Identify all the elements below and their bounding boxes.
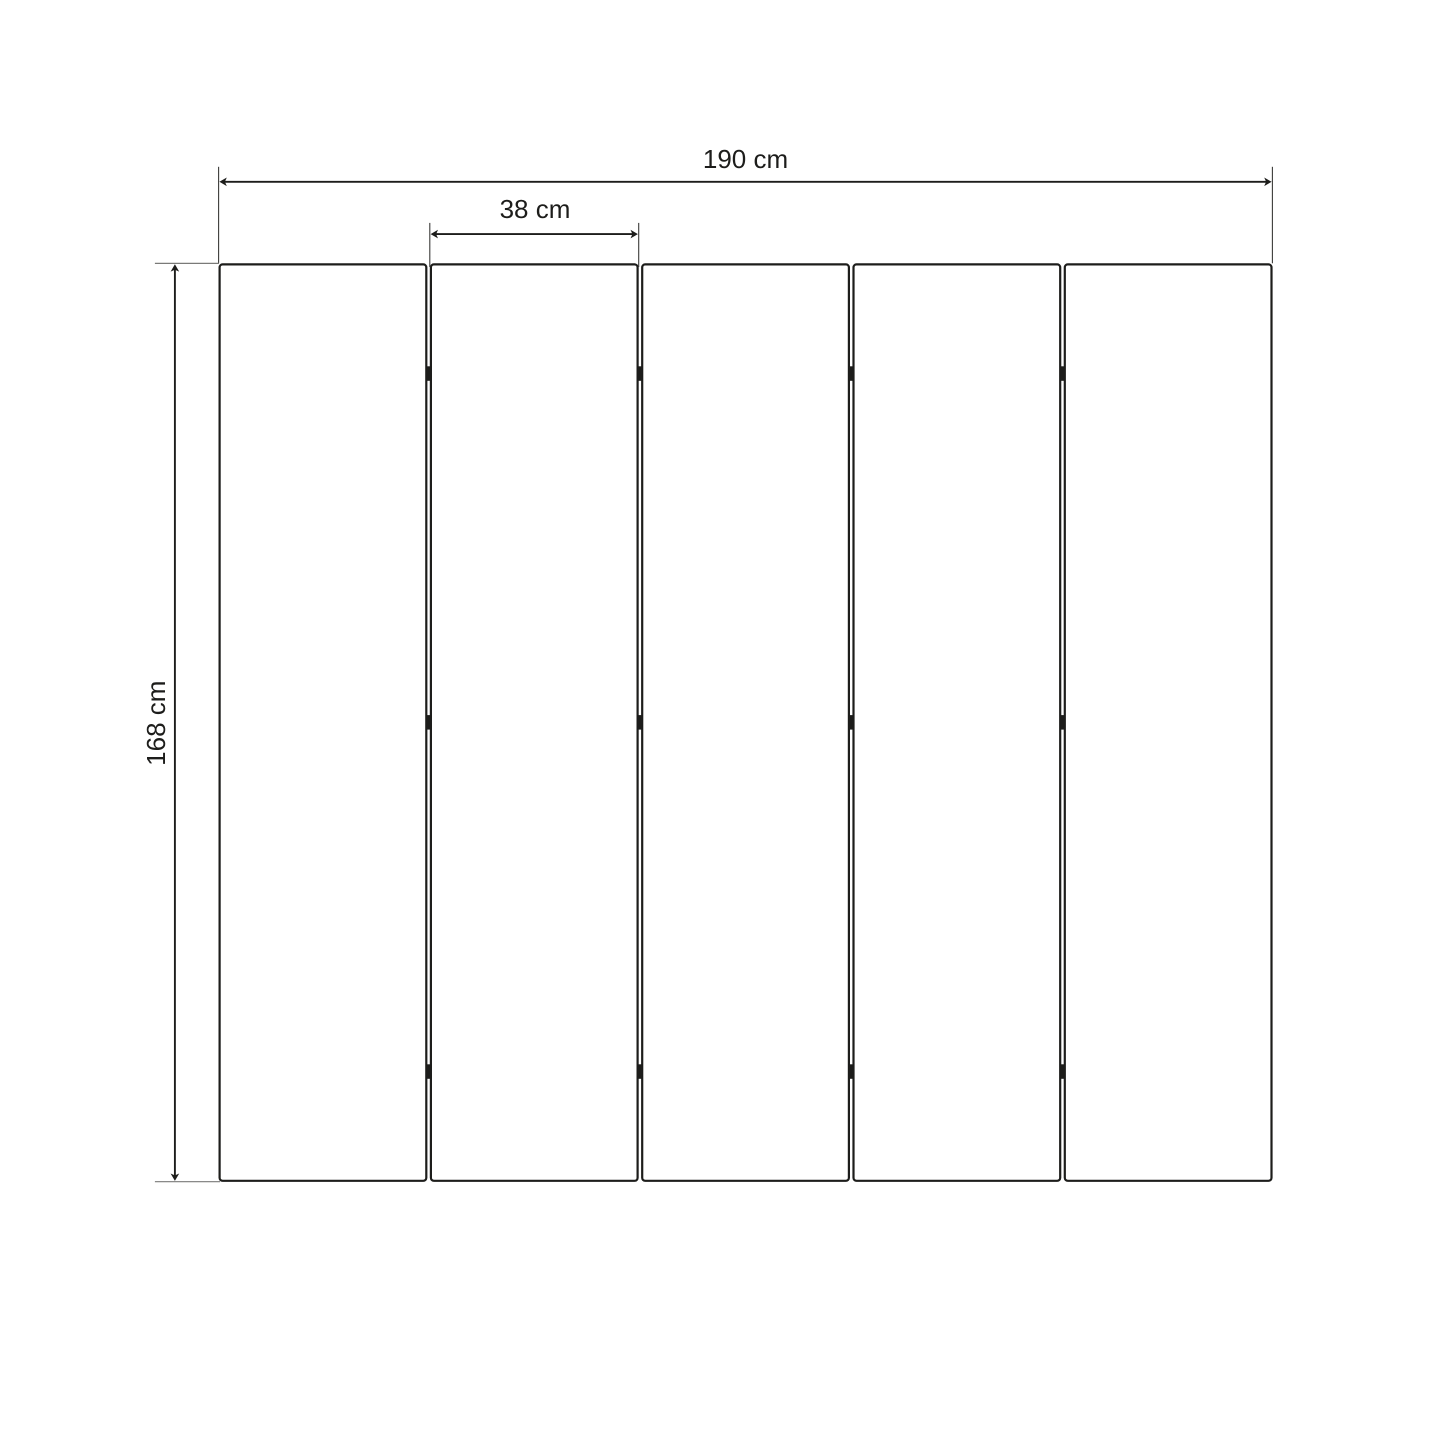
svg-text:168 cm: 168 cm [141, 681, 171, 766]
svg-text:38 cm: 38 cm [500, 194, 571, 224]
svg-text:190 cm: 190 cm [703, 144, 788, 174]
